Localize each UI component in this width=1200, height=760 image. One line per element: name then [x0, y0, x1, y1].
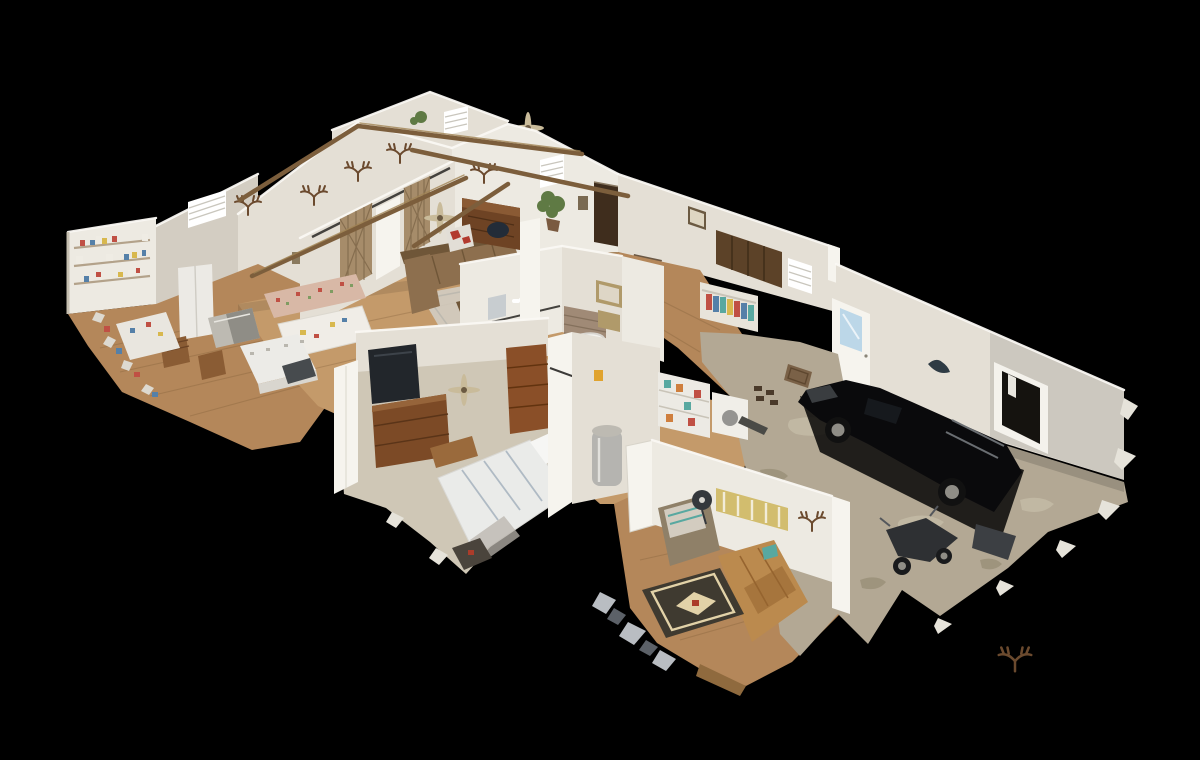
washer	[712, 392, 748, 440]
dollhouse-3d-view	[0, 0, 1200, 760]
den-garage-divider	[832, 496, 850, 614]
refrigerator	[178, 264, 214, 340]
tv	[368, 344, 420, 404]
yellow-label	[594, 370, 603, 381]
tall-chest	[506, 344, 550, 434]
bathroom-mirror	[488, 294, 506, 320]
viewer-stage[interactable]	[0, 0, 1200, 760]
office-chair	[487, 222, 509, 238]
framed-picture	[578, 196, 588, 210]
water-heater	[592, 425, 622, 486]
bedroom-utility-divider	[548, 332, 572, 518]
door-knob	[864, 354, 867, 357]
craft-room-wall	[68, 218, 156, 314]
